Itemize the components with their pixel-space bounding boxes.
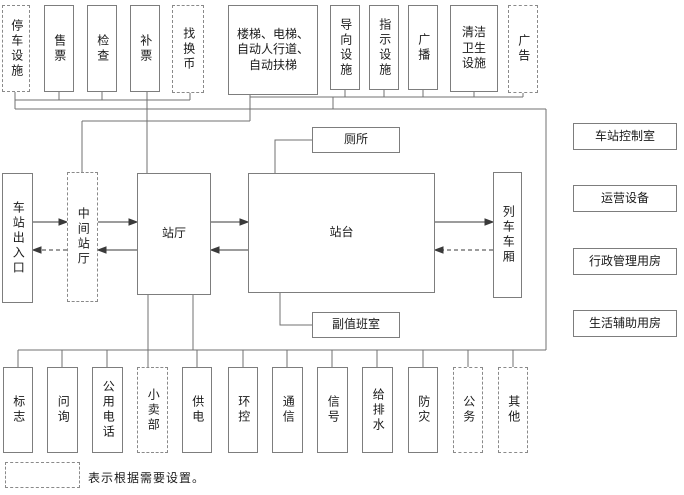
legend-dashed-sample-box bbox=[5, 462, 80, 488]
box-power-supply: 供电 bbox=[182, 367, 212, 453]
box-water-drainage: 给排水 bbox=[362, 367, 393, 453]
box-parking-facilities: 停车设施 bbox=[2, 5, 30, 92]
box-operation-equipment: 运营设备 bbox=[573, 185, 677, 212]
box-sign-facilities: 指示设施 bbox=[369, 5, 399, 90]
box-ticket-check: 检查 bbox=[87, 5, 117, 92]
box-toilet: 厕所 bbox=[312, 127, 400, 153]
box-living-auxiliary-rooms: 生活辅助用房 bbox=[573, 310, 677, 337]
station-function-diagram: 表示根据需要设置。 停车设施售票检查补票找换币楼梯、电梯、自动人行道、自动扶梯导… bbox=[0, 0, 684, 495]
box-station-entrance-exit: 车站出入口 bbox=[2, 173, 33, 303]
box-disaster-prevention: 防灾 bbox=[408, 367, 438, 453]
box-others: 其他 bbox=[498, 367, 528, 453]
box-environment-control: 环控 bbox=[228, 367, 258, 453]
box-change-money: 找换币 bbox=[172, 5, 204, 93]
box-cleaning-facilities: 清洁卫生设施 bbox=[450, 5, 498, 92]
box-public-phone: 公用电话 bbox=[92, 367, 123, 453]
legend-note: 表示根据需要设置。 bbox=[88, 469, 205, 486]
box-fare-adjustment: 补票 bbox=[130, 5, 160, 92]
box-advertising: 广告 bbox=[508, 5, 538, 93]
box-deputy-duty-room: 副值班室 bbox=[312, 312, 400, 338]
box-platform: 站台 bbox=[248, 173, 435, 293]
box-train-cars: 列车车厢 bbox=[493, 172, 522, 298]
box-admin-rooms: 行政管理用房 bbox=[573, 248, 677, 275]
box-signage: 标志 bbox=[3, 367, 33, 453]
box-kiosk: 小卖部 bbox=[137, 367, 168, 453]
box-ticket-sales: 售票 bbox=[44, 5, 74, 92]
box-guidance-facilities: 导向设施 bbox=[330, 5, 360, 90]
box-broadcast: 广播 bbox=[408, 5, 438, 90]
box-information: 问询 bbox=[47, 367, 78, 453]
box-stairs-escalators: 楼梯、电梯、自动人行道、自动扶梯 bbox=[228, 5, 318, 95]
box-station-control-room: 车站控制室 bbox=[573, 123, 677, 150]
box-intermediate-concourse: 中间站厅 bbox=[67, 172, 98, 302]
box-communication: 通信 bbox=[272, 367, 303, 453]
box-official-business: 公务 bbox=[453, 367, 483, 453]
box-signal: 信号 bbox=[317, 367, 348, 453]
box-concourse: 站厅 bbox=[137, 173, 211, 295]
